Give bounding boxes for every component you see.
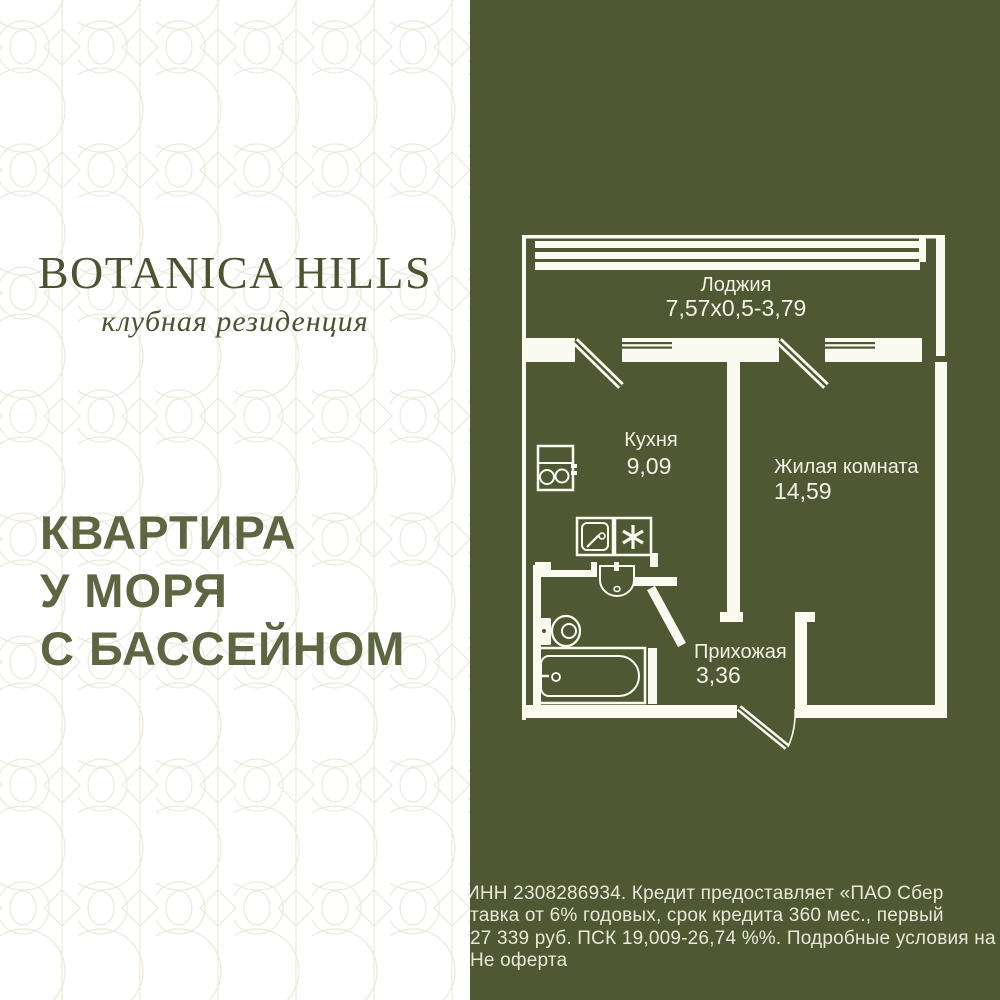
outer-wall-left xyxy=(522,235,526,720)
living-room-label: Жилая комната xyxy=(774,456,919,478)
wall-segment-b xyxy=(672,338,779,362)
living-room-area: 14,59 xyxy=(774,478,832,504)
loggia-right-post xyxy=(919,235,926,262)
bathtub-faucet-icon xyxy=(552,673,560,681)
bathtub-basin xyxy=(541,656,639,696)
legal-disclaimer: ИНН 2308286934. Кредит предоставляет «ПА… xyxy=(470,883,996,973)
headline-line-1: КВАРТИРА xyxy=(40,504,405,562)
kitchen-label: Кухня xyxy=(624,429,678,451)
kitchen-area: 9,09 xyxy=(627,453,672,479)
balcony-door-living-gap xyxy=(779,341,826,386)
entrance-door-swing-arc xyxy=(788,709,795,747)
burner-icon xyxy=(540,470,554,484)
hallway-divider-cap xyxy=(795,612,815,622)
brand-logo: BOTANICA HILLS клубная резиденция xyxy=(0,246,470,339)
headline-line-2: У МОРЯ xyxy=(40,562,405,620)
window-living xyxy=(825,338,875,362)
headline-line-3: С БАССЕЙНОМ xyxy=(40,620,405,678)
bathroom-sink-drain xyxy=(614,587,620,592)
kitchen-faucet-head xyxy=(599,533,605,539)
kitchen-sink-basin xyxy=(582,523,608,550)
brand-tagline: клубная резиденция xyxy=(0,305,470,339)
hallway-label: Прихожая xyxy=(694,641,787,663)
toilet-tank-button xyxy=(542,629,546,633)
toilet-bowl-inner xyxy=(562,624,576,638)
outer-wall-right-upper xyxy=(936,235,945,356)
bottom-wall-left xyxy=(522,705,737,718)
loggia-glazing-2 xyxy=(535,252,920,259)
hallway-area: 3,36 xyxy=(696,662,741,688)
asterisk-icon xyxy=(623,525,643,549)
loggia-label: Лоджия xyxy=(701,274,772,296)
loggia-dimensions: 7,57x0,5-3,79 xyxy=(666,295,807,321)
headline: КВАРТИРА У МОРЯ С БАССЕЙНОМ xyxy=(40,504,405,678)
window-living-glass-line2 xyxy=(825,347,875,349)
outer-wall-top xyxy=(522,235,945,239)
bathtub-side-wall xyxy=(648,648,657,704)
bathroom-door xyxy=(651,588,682,645)
partition-end-cap xyxy=(720,612,743,622)
brand-name: BOTANICA HILLS xyxy=(0,246,470,299)
kitchen-living-partition xyxy=(727,338,740,622)
floor-plan: Лоджия 7,57x0,5-3,79 Кухня 9,09 Жилая ко… xyxy=(520,224,952,752)
bottom-wall-right xyxy=(795,705,947,718)
disclaimer-line-4: Не оферта xyxy=(470,950,996,972)
background-pattern xyxy=(0,0,470,1000)
loggia-glazing-3 xyxy=(535,262,920,270)
living-right-wall xyxy=(935,362,947,718)
bathroom-sink-faucet xyxy=(614,562,619,571)
counter-tap-2 xyxy=(571,471,577,475)
left-panel: BOTANICA HILLS клубная резиденция КВАРТИ… xyxy=(0,0,470,1000)
disclaimer-line-3: 27 339 руб. ПСК 19,009-26,74 %%. Подробн… xyxy=(470,928,996,950)
kitchen-faucet-icon xyxy=(587,535,599,547)
window-living-glass-line xyxy=(825,342,875,344)
window-kitchen-glass-line2 xyxy=(622,347,672,349)
loggia-glazing-1 xyxy=(535,241,920,248)
bathroom-top-wall-right xyxy=(634,577,677,586)
burner-icon-2 xyxy=(556,470,569,483)
bathroom-fixtures xyxy=(533,562,645,703)
window-kitchen-glass-line xyxy=(622,342,672,344)
wall-segment-c xyxy=(875,338,922,362)
pattern-fill xyxy=(0,0,470,1000)
hallway-divider-wall xyxy=(795,612,807,718)
counter-tap xyxy=(571,464,577,468)
disclaimer-line-1: ИНН 2308286934. Кредит предоставляет «ПА… xyxy=(470,883,996,905)
entrance-door-gap xyxy=(739,708,787,747)
balcony-door-kitchen-gap xyxy=(575,341,621,386)
window-kitchen xyxy=(622,338,672,362)
wall-segment-a xyxy=(522,338,575,362)
bathroom-wall-notch xyxy=(551,562,591,570)
disclaimer-line-2: тавка от 6% годовых, срок кредита 360 ме… xyxy=(470,905,996,927)
